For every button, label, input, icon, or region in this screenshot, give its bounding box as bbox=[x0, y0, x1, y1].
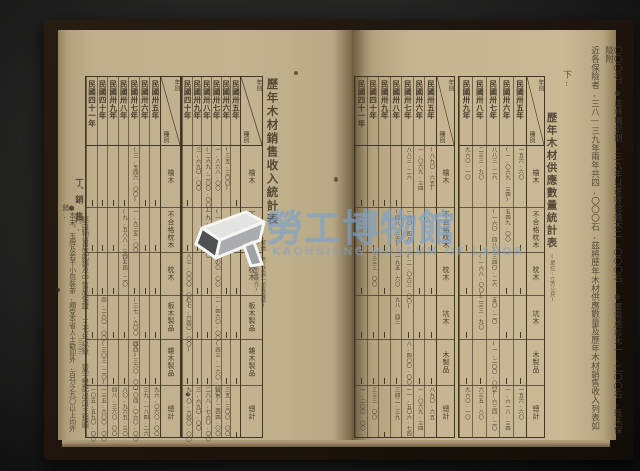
data-cell bbox=[183, 339, 192, 385]
year-header-text: 民國卅七年 bbox=[130, 77, 138, 145]
year-header-text: 民國卅七年 bbox=[213, 77, 221, 145]
data-cell bbox=[402, 295, 413, 339]
row-label-text: 木製品 bbox=[532, 351, 539, 374]
data-cell bbox=[119, 339, 129, 385]
table-rule bbox=[355, 252, 454, 253]
data-cell bbox=[193, 252, 202, 295]
no-data-dash bbox=[396, 378, 397, 384]
no-data-dash bbox=[384, 378, 385, 384]
cell-value: 一一,五〇六.七四 bbox=[405, 387, 410, 436]
data-cell bbox=[379, 339, 390, 385]
row-label-text: 枕木 bbox=[442, 266, 449, 281]
no-data-dash bbox=[520, 378, 521, 384]
no-data-dash bbox=[187, 200, 188, 206]
no-data-dash bbox=[431, 332, 432, 338]
data-cell bbox=[150, 295, 160, 339]
row-label: 不合格枕木 bbox=[241, 207, 262, 252]
year-header-cell: 民國卅五年 bbox=[514, 77, 526, 145]
no-data-dash bbox=[480, 378, 481, 384]
data-cell: 八〇〇.〇〇 bbox=[212, 252, 221, 295]
year-type-corner-cell: 年別種別 bbox=[241, 77, 262, 145]
data-cell: 八〇,九六五.三〇 bbox=[119, 385, 129, 439]
year-header-text: 民國卅九年 bbox=[109, 77, 117, 145]
data-cell bbox=[87, 145, 97, 207]
year-header-text: 民國卅八年 bbox=[476, 77, 484, 145]
year-header-cell: 民國卅八年 bbox=[473, 77, 485, 145]
data-cell: (二六九,二〇〇.〇〇) bbox=[202, 145, 211, 207]
data-cell: 一九,五六〇.〇〇 bbox=[202, 207, 211, 252]
row-label: 雜木製品 bbox=[241, 339, 262, 385]
no-data-dash bbox=[92, 245, 93, 251]
data-cell bbox=[193, 207, 202, 252]
year-column: 民國卅五年 bbox=[230, 77, 240, 437]
cell-value: 四八,三六〇.〇〇 bbox=[110, 387, 115, 436]
no-data-dash bbox=[187, 378, 188, 384]
data-cell: 九�〇,六四〇.〇〇 bbox=[183, 385, 192, 439]
no-data-dash bbox=[384, 200, 385, 206]
table-rule bbox=[86, 339, 180, 340]
row-label: 枕木 bbox=[161, 252, 180, 295]
right-table-block-right: 年別種別檜木不合格枕木枕木坑木木製品總計民國卅五年一五六.六〇一五六.六〇民國卅… bbox=[458, 76, 545, 438]
data-cell: 五〇.二〇 bbox=[487, 295, 499, 339]
year-header-text: 民國卅七年 bbox=[404, 77, 412, 145]
cell-value: 一九,五六〇.〇〇 bbox=[204, 209, 209, 258]
cell-value: (八九〇.六五) bbox=[428, 147, 433, 192]
year-column: 民國卅七年(三,五四六.〇〇)一,九三五.〇〇(三七,六〇〇.〇〇)四八,三六〇… bbox=[128, 77, 139, 437]
data-cell bbox=[119, 295, 129, 339]
row-label: 木製品 bbox=[527, 339, 544, 385]
row-label: 坑木 bbox=[527, 295, 544, 339]
year-header-text: 民國卅五年 bbox=[151, 77, 159, 145]
no-data-dash bbox=[155, 332, 156, 338]
data-cell bbox=[473, 339, 485, 385]
data-cell bbox=[514, 339, 526, 385]
data-cell: 四八,三六〇.〇〇 bbox=[129, 339, 139, 385]
data-cell: 一,八六八.〇〇 bbox=[212, 145, 221, 207]
data-cell bbox=[222, 295, 231, 339]
data-cell bbox=[514, 207, 526, 252]
cell-value: 一,二〇〇.〇〇 bbox=[359, 387, 364, 431]
cell-value: 八〇〇.〇〇 bbox=[214, 254, 219, 287]
data-cell bbox=[460, 295, 472, 339]
data-cell bbox=[514, 252, 526, 295]
data-cell: (一六〇.四八) bbox=[487, 207, 499, 252]
no-data-dash bbox=[431, 245, 432, 251]
data-cell bbox=[193, 339, 202, 385]
year-column: 民國四十一年一,二〇〇.〇〇 bbox=[355, 77, 367, 437]
year-type-corner-cell: 年別種別 bbox=[437, 77, 454, 145]
data-cell: 一,九三五.〇〇 bbox=[129, 207, 139, 252]
data-cell bbox=[140, 145, 150, 207]
data-cell: 八,四〇〇.〇〇 bbox=[402, 339, 413, 385]
cell-value: 八〇,九六五.三〇 bbox=[121, 387, 126, 436]
data-cell bbox=[140, 339, 150, 385]
year-column: 民國卅六年三九,一八四.二六 bbox=[139, 77, 150, 437]
table-rule bbox=[459, 295, 544, 296]
no-data-dash bbox=[506, 378, 507, 384]
cell-value: 二,四六〇.〇〇 bbox=[214, 297, 219, 341]
data-cell: 一〇五,五九〇.〇〇 bbox=[87, 385, 97, 439]
category-label-column: 年別種別檜木不合格枕木枕木板木製品雜木製品總計 bbox=[240, 77, 262, 437]
cell-value: 八八三.二六 bbox=[490, 147, 495, 180]
cell-value: 九六〇.一〇 bbox=[464, 387, 469, 420]
data-cell: 三,六九〇.〇〇 bbox=[193, 385, 202, 439]
year-header-text: 民國四十年 bbox=[369, 77, 377, 145]
row-label-text: 枕木 bbox=[248, 266, 255, 281]
no-data-dash bbox=[384, 432, 385, 438]
data-cell: 一〇四,〇六〇.〇〇 bbox=[129, 385, 139, 439]
row-label: 雜木製品 bbox=[161, 339, 180, 385]
row-label: 總計 bbox=[437, 385, 454, 439]
cell-value: 一,八六八.〇〇 bbox=[214, 147, 219, 191]
row-label: 不合格枕木 bbox=[527, 207, 544, 252]
data-cell bbox=[87, 207, 97, 252]
cell-value: 二三三.九〇 bbox=[477, 147, 482, 180]
year-header-cell: 民國卅九年 bbox=[379, 77, 390, 145]
body-paragraph-line: 〇〇〇石。⊕這林場淤期,三九年以遂收拾雜木二,〇〇〇石,⊕軍需處杉木一,二〇〇石… bbox=[604, 46, 621, 440]
data-cell: 二三三.九〇 bbox=[473, 295, 485, 339]
year-header-cell: 民國卅八年 bbox=[202, 77, 211, 145]
data-cell: 三四二.三九 bbox=[391, 385, 402, 439]
row-label: 板木製品 bbox=[161, 295, 180, 339]
row-label-text: 枕木 bbox=[167, 266, 174, 281]
row-label-text: 不合格枕木 bbox=[248, 211, 255, 249]
year-header-text: 民國卅六年 bbox=[415, 77, 423, 145]
no-data-dash bbox=[145, 332, 146, 338]
year-header-cell: 民國四十一年 bbox=[356, 77, 367, 145]
data-cell: 一,六一八.三四 bbox=[500, 385, 512, 439]
row-label: 枕木 bbox=[437, 252, 454, 295]
no-data-dash bbox=[207, 378, 208, 384]
no-data-dash bbox=[384, 332, 385, 338]
right-table-title: 歷年木材供應數量統計表 bbox=[546, 112, 557, 250]
data-cell bbox=[108, 252, 118, 295]
right-table-title-note: (單位:立方公尺) bbox=[549, 254, 554, 326]
year-header-text: 民國卅七年 bbox=[489, 77, 497, 145]
row-label-text: 檜木 bbox=[532, 169, 539, 184]
cell-value: 三,六九〇.〇〇 bbox=[194, 147, 199, 191]
no-data-dash bbox=[520, 332, 521, 338]
no-data-dash bbox=[419, 245, 420, 251]
year-column: 民國卅六年(三五,三〇〇)三五,三〇〇.〇〇 bbox=[221, 77, 231, 437]
no-data-dash bbox=[113, 332, 114, 338]
year-header-cell: 民國卅五年 bbox=[425, 77, 436, 145]
cell-value: 一〇五,五九〇.〇〇 bbox=[89, 387, 94, 441]
corner-label-type: 種別 bbox=[242, 131, 248, 143]
table-rule bbox=[355, 145, 454, 146]
year-header-text: 民國卅五年 bbox=[516, 77, 524, 145]
table-rule bbox=[182, 339, 262, 340]
data-cell bbox=[414, 295, 425, 339]
data-cell bbox=[379, 252, 390, 295]
cell-value: 九�〇,六四〇.〇〇 bbox=[185, 387, 190, 442]
year-header-cell: 民國卅六年 bbox=[222, 77, 231, 145]
no-data-dash bbox=[373, 245, 374, 251]
no-data-dash bbox=[520, 245, 521, 251]
data-cell bbox=[140, 207, 150, 252]
no-data-dash bbox=[102, 245, 103, 251]
no-data-dash bbox=[466, 288, 467, 294]
data-cell: 八九〇.六五 bbox=[425, 385, 436, 439]
data-cell bbox=[202, 295, 211, 339]
cell-value: 三四二.三九 bbox=[393, 387, 398, 420]
cell-value: (一,〇六九.三四) bbox=[504, 147, 509, 203]
year-header-cell: 民國卅六年 bbox=[500, 77, 512, 145]
year-header-text: 民國四十一年 bbox=[358, 77, 366, 145]
data-cell bbox=[356, 145, 367, 207]
cell-value: 一六〇.四八 bbox=[405, 209, 410, 242]
data-cell bbox=[356, 207, 367, 252]
row-label-text: 板木製品 bbox=[248, 302, 255, 332]
data-cell bbox=[414, 339, 425, 385]
year-header-text: 民國四十一年 bbox=[88, 77, 96, 145]
table-rule bbox=[459, 339, 544, 340]
category-label-column: 年別種別檜木不合格枕木枕木坑木木製品總計 bbox=[436, 77, 454, 437]
year-header-cell: 民國卅七年 bbox=[487, 77, 499, 145]
year-column: 民國卅七年一,八六八.〇〇(一,九五六.〇〇)八〇〇.〇〇二,四六〇.〇〇(四三… bbox=[211, 77, 221, 437]
body-paragraph-line: 下: bbox=[562, 70, 571, 110]
table-rule bbox=[86, 295, 180, 296]
data-cell bbox=[231, 339, 240, 385]
data-cell: 三四〇.二六 bbox=[487, 252, 499, 295]
table-rule bbox=[182, 385, 262, 386]
data-cell: (三七,六〇〇.〇〇) bbox=[129, 295, 139, 339]
cell-value: (三,五四六.〇〇) bbox=[131, 147, 136, 203]
year-header-cell: 民國四十年 bbox=[183, 77, 192, 145]
cell-value: (二六九,二〇〇.〇〇) bbox=[204, 147, 209, 213]
year-header-cell: 民國卅九年 bbox=[193, 77, 202, 145]
no-data-dash bbox=[226, 288, 227, 294]
year-column: 民國卅五年九六,〇六〇.〇〇 bbox=[149, 77, 160, 437]
year-column: 民國卅五年(八九〇.六五)八九〇.六五 bbox=[424, 77, 436, 437]
year-header-text: 民國卅五年 bbox=[232, 77, 240, 145]
data-cell: (一,二〇〇.〇〇) bbox=[487, 339, 499, 385]
data-cell bbox=[425, 339, 436, 385]
data-cell bbox=[391, 339, 402, 385]
no-data-dash bbox=[102, 288, 103, 294]
no-data-dash bbox=[102, 200, 103, 206]
no-data-dash bbox=[431, 288, 432, 294]
cell-value: (一六〇.四八) bbox=[490, 209, 495, 254]
year-header-cell: 民國卅七年 bbox=[402, 77, 413, 145]
left-table-block-left: 年別種別檜木不合格枕木枕木板木製品雜木製品總計民國卅五年九六,〇六〇.〇〇民國卅… bbox=[85, 76, 181, 438]
cell-value: 四,二六〇.〇〇 bbox=[100, 297, 105, 341]
data-cell: (三五,三〇〇) bbox=[222, 145, 231, 207]
data-cell bbox=[222, 252, 231, 295]
no-data-dash bbox=[236, 332, 237, 338]
cell-value: 三五,三〇〇.〇〇 bbox=[223, 387, 228, 436]
cell-value: 一九五.六〇 bbox=[393, 254, 398, 287]
no-data-dash bbox=[155, 378, 156, 384]
table-rule bbox=[86, 252, 180, 253]
data-cell: (一,九五六.〇〇) bbox=[212, 207, 221, 252]
data-cell: 一五六.六〇 bbox=[514, 145, 526, 207]
data-cell bbox=[368, 145, 379, 207]
no-data-dash bbox=[113, 288, 114, 294]
no-data-dash bbox=[466, 378, 467, 384]
year-header-text: 民國卅六年 bbox=[222, 77, 230, 145]
row-label: 枕木 bbox=[527, 252, 544, 295]
data-cell bbox=[460, 339, 472, 385]
data-cell: 九六,〇六〇.〇〇 bbox=[150, 385, 160, 439]
data-cell: 三五,三〇〇.〇〇 bbox=[222, 385, 231, 439]
data-cell: 九六〇.一〇 bbox=[460, 145, 472, 207]
data-cell bbox=[87, 252, 97, 295]
no-data-dash bbox=[145, 378, 146, 384]
table-rule bbox=[86, 207, 180, 208]
data-cell bbox=[202, 339, 211, 385]
data-cell: 八三,〇〇〇.〇〇 bbox=[183, 252, 192, 295]
cell-value: 四八,三六〇.〇〇 bbox=[131, 341, 136, 390]
no-data-dash bbox=[155, 245, 156, 251]
cell-value: 八九〇.六五 bbox=[428, 387, 433, 420]
no-data-dash bbox=[226, 245, 227, 251]
data-cell bbox=[140, 252, 150, 295]
data-cell bbox=[391, 145, 402, 207]
no-data-dash bbox=[113, 200, 114, 206]
data-cell bbox=[108, 207, 118, 252]
year-header-text: 民國卅九年 bbox=[462, 77, 470, 145]
cell-value: 五四九.〇〇 bbox=[504, 209, 509, 242]
no-data-dash bbox=[197, 378, 198, 384]
year-column: 民國卅八年二三三.九〇(一六八.〇〇)二三三.九〇六三五.八〇 bbox=[472, 77, 485, 437]
no-data-dash bbox=[113, 245, 114, 251]
cell-value: 六三五.八〇 bbox=[477, 387, 482, 420]
data-cell: 四九,二四四.〇〇 bbox=[212, 385, 221, 439]
row-label-text: 坑木 bbox=[532, 310, 539, 325]
table-rule bbox=[86, 145, 180, 146]
row-label-text: 總計 bbox=[248, 405, 255, 420]
data-cell bbox=[368, 207, 379, 252]
row-label-text: 不合格枕木 bbox=[442, 211, 449, 249]
no-data-dash bbox=[431, 378, 432, 384]
cell-value: 三,六九〇.〇〇 bbox=[194, 387, 199, 431]
corner-label-year: 年別 bbox=[537, 79, 543, 91]
cell-value: 二八八,七六〇.〇〇 bbox=[204, 387, 209, 441]
data-cell bbox=[473, 207, 485, 252]
data-cell bbox=[425, 295, 436, 339]
year-header-cell: 民國卅五年 bbox=[231, 77, 240, 145]
data-cell bbox=[356, 252, 367, 295]
data-cell: (八九〇.六五) bbox=[425, 145, 436, 207]
data-cell bbox=[87, 339, 97, 385]
no-data-dash bbox=[419, 288, 420, 294]
no-data-dash bbox=[506, 332, 507, 338]
year-type-corner-cell: 年別種別 bbox=[527, 77, 544, 145]
data-cell bbox=[514, 295, 526, 339]
year-column: 民國卅六年一,〇六九.三四一,〇六九.三四 bbox=[413, 77, 425, 437]
cell-value: (一六八.〇〇) bbox=[477, 254, 482, 299]
data-cell: (九,五八八.三〇) bbox=[119, 207, 129, 252]
corner-label-year: 年別 bbox=[255, 79, 261, 91]
cell-value: 一五六.六〇 bbox=[517, 147, 522, 180]
no-data-dash bbox=[506, 288, 507, 294]
year-header-cell: 民國四十年 bbox=[368, 77, 379, 145]
year-header-cell: 民國卅七年 bbox=[129, 77, 139, 145]
data-cell: 四,二六〇.〇〇 bbox=[98, 295, 108, 339]
year-header-cell: 民國卅六年 bbox=[414, 77, 425, 145]
year-header-text: 民國卅九年 bbox=[381, 77, 389, 145]
row-label-text: 不合格枕木 bbox=[167, 211, 174, 249]
row-label: 板木製品 bbox=[241, 295, 262, 339]
table-rule bbox=[355, 295, 454, 296]
data-cell bbox=[183, 207, 192, 252]
data-cell: 八八三.二六 bbox=[402, 145, 413, 207]
data-cell bbox=[356, 339, 367, 385]
year-column: 民國卅九年三,六九〇.〇〇三,六九〇.〇〇 bbox=[192, 77, 202, 437]
no-data-dash bbox=[361, 245, 362, 251]
no-data-dash bbox=[92, 288, 93, 294]
data-cell bbox=[231, 295, 240, 339]
year-column: 民國卅六年(一,〇六九.三四)五四九.〇〇一,六一八.三四 bbox=[499, 77, 512, 437]
data-cell bbox=[379, 295, 390, 339]
no-data-dash bbox=[520, 288, 521, 294]
year-header-cell: 民國卅八年 bbox=[391, 77, 402, 145]
data-cell: 九八.四三 bbox=[391, 295, 402, 339]
data-cell: 六三五.八〇 bbox=[473, 385, 485, 439]
data-cell bbox=[108, 339, 118, 385]
data-cell: (四八.三六) bbox=[391, 207, 402, 252]
data-cell bbox=[222, 207, 231, 252]
data-cell: 四八,三六〇.〇〇 bbox=[108, 385, 118, 439]
year-column: 民國卅九年 bbox=[378, 77, 390, 437]
row-label-text: 不合格枕木 bbox=[532, 211, 539, 249]
no-data-dash bbox=[373, 378, 374, 384]
year-column: 民國卅五年一五六.六〇一五六.六〇 bbox=[513, 77, 526, 437]
year-header-cell: 民國四十年 bbox=[98, 77, 108, 145]
data-cell: (一六八.〇〇) bbox=[473, 252, 485, 295]
no-data-dash bbox=[236, 288, 237, 294]
cell-value: 二三三.九〇 bbox=[477, 297, 482, 330]
row-label-text: 總計 bbox=[442, 405, 449, 420]
cell-value: 四九,二四四.〇〇 bbox=[214, 387, 219, 436]
data-cell bbox=[150, 145, 160, 207]
no-data-dash bbox=[207, 332, 208, 338]
data-cell bbox=[98, 207, 108, 252]
data-cell: (四三,一六〇.〇〇) bbox=[212, 339, 221, 385]
row-label: 檜木 bbox=[241, 145, 262, 207]
left-table-block-right: 年別種別檜木不合格枕木枕木板木製品雜木製品總計民國卅五年民國卅六年(三五,三〇〇… bbox=[181, 76, 263, 438]
table-rule bbox=[459, 207, 544, 208]
no-data-dash bbox=[384, 245, 385, 251]
no-data-dash bbox=[373, 332, 374, 338]
cell-value: 一,〇六九.三四 bbox=[417, 387, 422, 431]
data-cell: 三三三.〇〇 bbox=[368, 252, 379, 295]
no-data-dash bbox=[480, 245, 481, 251]
left-table-title: 歷年木材銷售收入統計表 bbox=[266, 78, 278, 227]
data-cell: 八八三.二六 bbox=[487, 145, 499, 207]
data-cell bbox=[379, 385, 390, 439]
year-type-corner-cell: 年別種別 bbox=[161, 77, 180, 145]
table-rule bbox=[355, 207, 454, 208]
data-cell: 一,〇六九.三四 bbox=[414, 145, 425, 207]
data-cell: 三,六九〇.〇〇 bbox=[193, 145, 202, 207]
cell-value: (三〇三.二〇) bbox=[100, 341, 105, 386]
no-data-dash bbox=[155, 288, 156, 294]
data-cell bbox=[425, 252, 436, 295]
data-cell: 六三四.二〇 bbox=[119, 252, 129, 295]
data-cell: 二八八,七六〇.〇〇 bbox=[202, 385, 211, 439]
no-data-dash bbox=[373, 200, 374, 206]
year-column: 民國四十年八三,〇〇〇.〇〇(七,六四〇.〇〇)九�〇,六四〇.〇〇 bbox=[182, 77, 192, 437]
table-rule bbox=[182, 207, 262, 208]
year-column: 民國四十年三三三.〇〇三三三.〇〇 bbox=[367, 77, 379, 437]
cell-value: (三五,三〇〇) bbox=[223, 147, 228, 192]
data-cell: 一,二〇〇.〇〇 bbox=[356, 385, 367, 439]
data-cell: (一,〇六九.三四) bbox=[500, 145, 512, 207]
corner-label-type: 種別 bbox=[528, 131, 534, 143]
data-cell bbox=[202, 252, 211, 295]
